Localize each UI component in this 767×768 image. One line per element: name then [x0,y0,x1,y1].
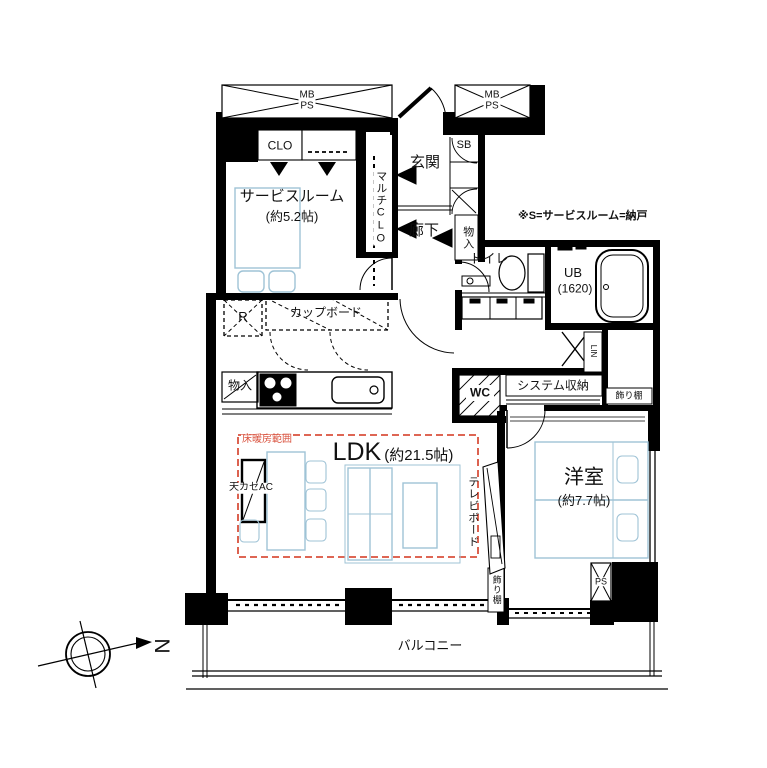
entrance-label: 玄関 [410,155,440,171]
toilet-label: トイレ [469,252,508,266]
multi-closet-label: マルチCLO [373,171,387,246]
western-room-label: 洋室 [564,468,604,489]
mb-ps-left-label: MBPS [299,91,316,112]
tv-board-label: テレビボード [466,476,478,548]
refrigerator-label: R [238,310,247,324]
ldk-label: LDK(約21.5帖) [333,439,454,465]
ldk-size: (約21.5帖) [384,448,453,464]
linen-label: LIN [589,345,597,357]
western-room-size: (約7.7帖) [558,494,611,508]
shoe-box-label: SB [457,140,472,152]
kitchen-storage-label: 物入 [228,380,252,393]
floor-plan-linework [0,0,767,768]
ldk-name: LDK [333,439,382,465]
hallway-label: 廊下 [409,223,439,239]
service-room-size: (約5.2帖) [266,210,319,224]
system-storage-label: システム収納 [517,380,589,393]
bathroom-size: (1620) [558,283,593,296]
washer-label: WC [470,387,490,400]
cupboard-label: カップボード [290,307,362,320]
bathroom-label: UB [564,266,582,280]
pipe-space-label: PS [594,577,608,586]
display-shelf-side-label: 飾り棚 [491,575,500,605]
note-label: ※S=サービスルーム=納戸 [518,211,648,223]
mb-ps-right-label: MBPS [484,91,501,112]
floor-plan: MBPS MBPS CLO マルチCLO サービスルーム (約5.2帖) 玄関 … [0,0,767,768]
ceiling-ac-label: 天カセAC [228,483,274,494]
display-shelf-top-label: 飾り棚 [615,391,642,400]
compass [38,621,152,688]
closet-label: CLO [268,140,293,153]
hall-storage-label: 物入 [461,226,473,250]
service-room-label: サービスルーム [240,189,345,205]
floor-heating-label: 床暖房範囲 [241,435,293,446]
balcony-label: バルコニー [398,639,463,653]
compass-north-label: N [150,638,172,653]
